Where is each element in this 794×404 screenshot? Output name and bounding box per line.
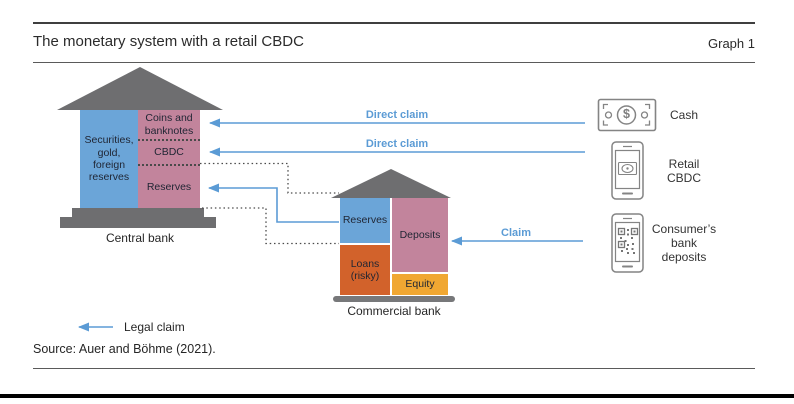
bottom-black-bar (0, 394, 794, 398)
central-bank-coins-banknotes-box: Coins and banknotes (138, 110, 200, 139)
commercial-bank-roof (331, 169, 451, 198)
central-bank-plinth-upper (72, 208, 204, 217)
figure-title: The monetary system with a retail CBDC (33, 33, 304, 50)
qr-code-glyph (619, 229, 638, 255)
central-bank-assets-box: Securities, gold, foreign reserves (80, 110, 138, 208)
title-underline-rule (33, 62, 755, 63)
direct-claim-label-cash: Direct claim (337, 109, 457, 121)
central-bank-reserves-box: Reserves (138, 164, 200, 208)
retail-cbdc-phone-icon (612, 142, 643, 199)
central-bank-label: Central bank (70, 231, 210, 245)
commercial-bank-deposits-box: Deposits (392, 198, 448, 272)
graph-number: Graph 1 (708, 36, 755, 51)
claim-label-deposits: Claim (486, 227, 546, 239)
qr-phone-icon (612, 214, 643, 272)
commercial-bank-loans-box: Loans (risky) (340, 245, 390, 295)
direct-claim-label-cbdc: Direct claim (337, 138, 457, 150)
commercial-bank-label: Commercial bank (324, 304, 464, 318)
figure-canvas: The monetary system with a retail CBDC G… (0, 0, 794, 404)
commercial-bank-plinth (333, 296, 455, 302)
central-bank-cbdc-box: CBDC (138, 139, 200, 164)
commercial-bank-reserves-box: Reserves (340, 198, 390, 243)
central-bank-plinth-lower (60, 217, 216, 228)
reserves-claim-arrow (209, 188, 339, 222)
source-note: Source: Auer and Böhme (2021). (33, 342, 216, 356)
legend-legal-claim-label: Legal claim (124, 320, 185, 334)
bottom-rule (33, 368, 755, 369)
dollar-sign-glyph: $ (619, 107, 634, 121)
retail-cbdc-label: Retail CBDC (649, 157, 719, 185)
consumer-bank-deposits-label: Consumer’s bank deposits (646, 222, 722, 264)
reserves-base-dotted-connector (202, 208, 339, 244)
central-bank-roof (57, 67, 223, 110)
top-rule (33, 22, 755, 24)
cash-label: Cash (649, 108, 719, 122)
commercial-bank-equity-box: Equity (392, 274, 448, 295)
cbdc-reserves-dotted-connector (200, 164, 339, 194)
